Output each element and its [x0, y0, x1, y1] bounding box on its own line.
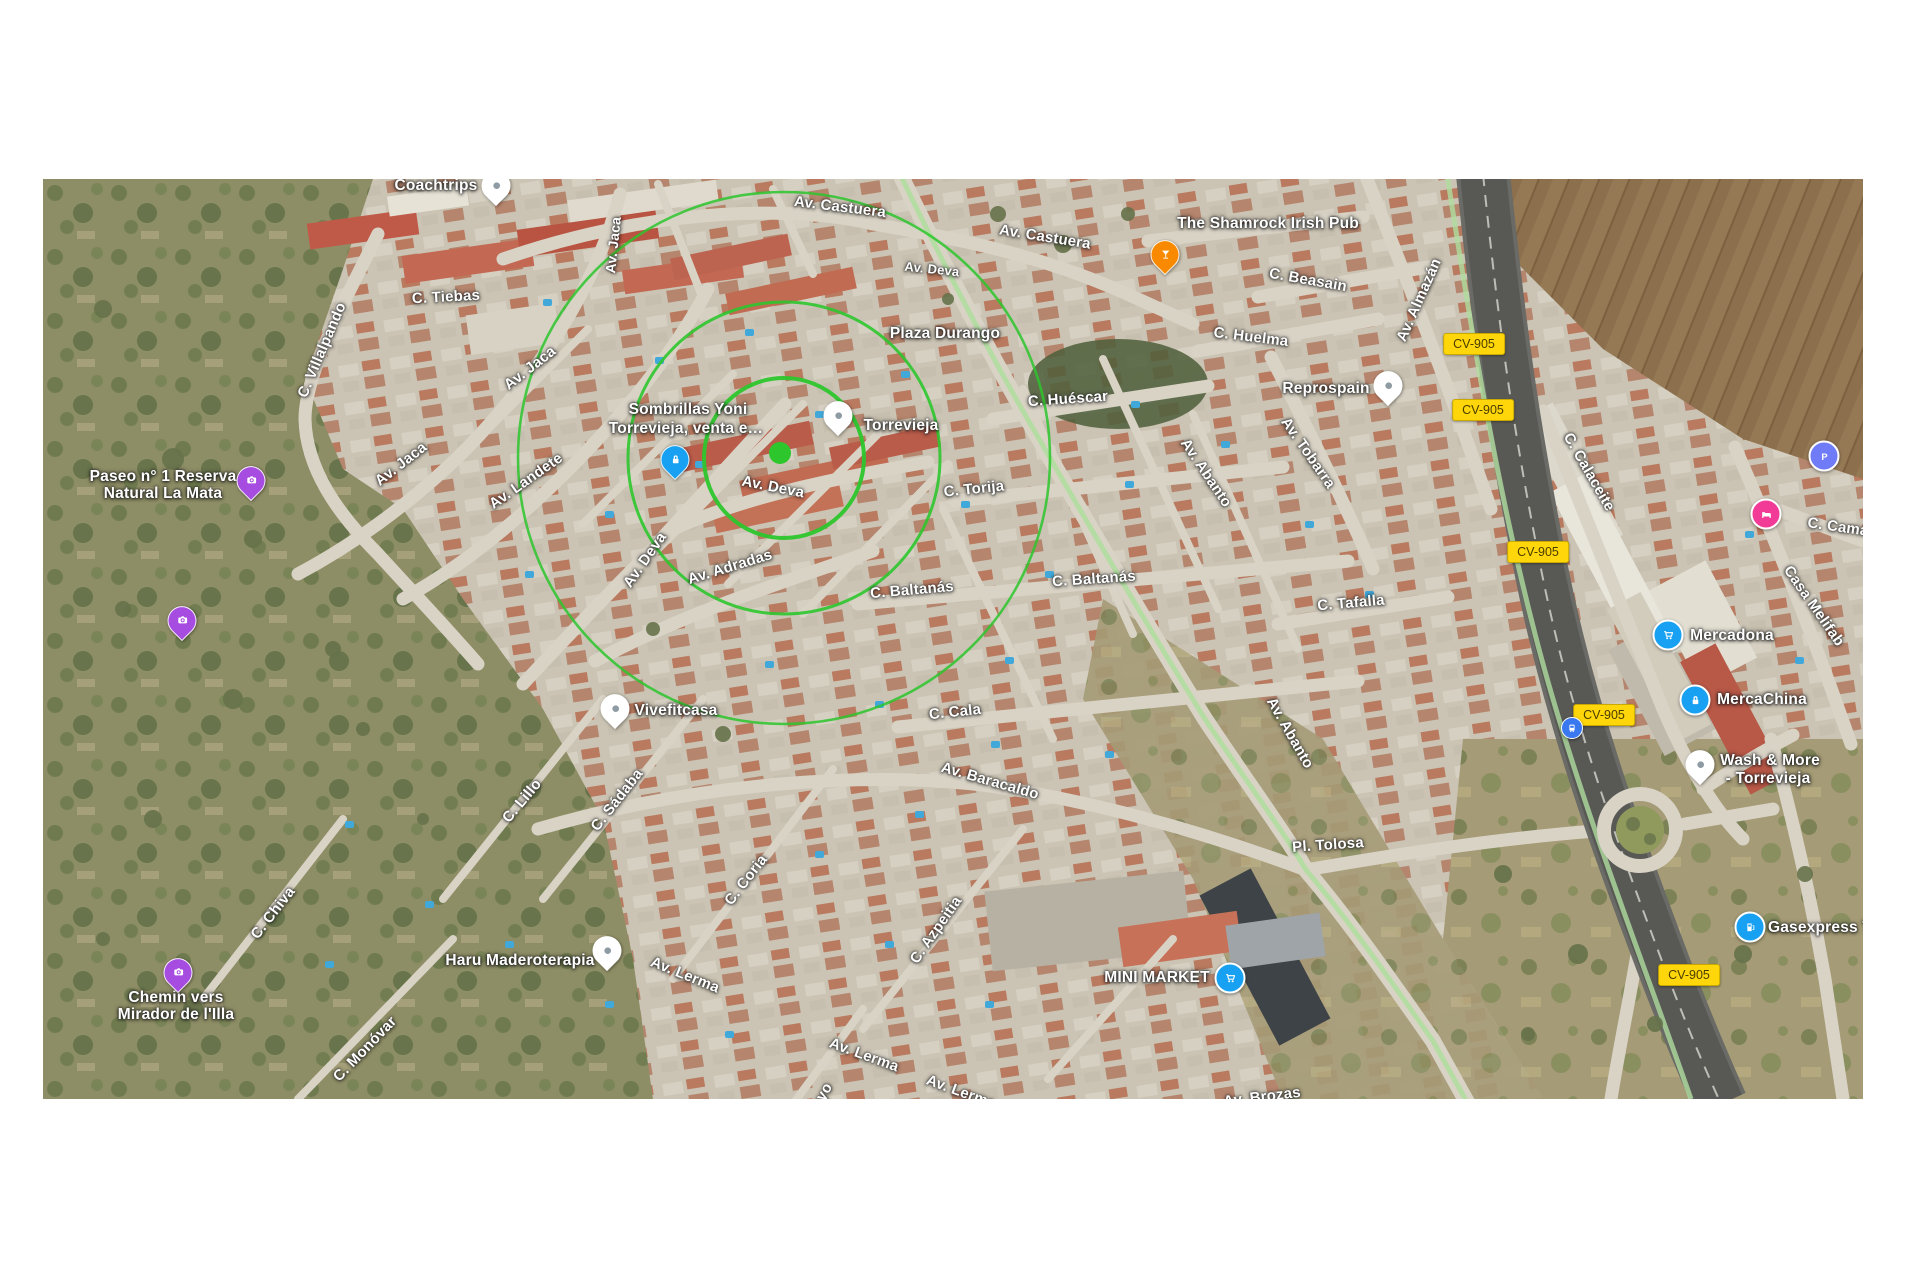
photo-pin-chemin[interactable]	[164, 958, 193, 987]
marker-icon	[1687, 692, 1703, 708]
marker-icon	[667, 452, 683, 468]
marker-icon	[1222, 970, 1238, 986]
marker-icon	[1566, 722, 1578, 734]
marker-icon	[174, 613, 190, 629]
marker-icon	[607, 701, 623, 717]
gasexpress-fuel-pin[interactable]	[1735, 912, 1766, 943]
mini-market-cart-pin[interactable]	[1215, 963, 1246, 994]
marker-icon	[1660, 627, 1676, 643]
marker-icon	[1816, 448, 1832, 464]
photo-pin-paseo[interactable]	[237, 466, 266, 495]
marker-icon	[243, 473, 259, 489]
marker-icon	[1758, 506, 1774, 522]
markers-layer	[43, 179, 1863, 1099]
marker-icon	[830, 408, 846, 424]
bus-stop-pin[interactable]	[1561, 717, 1583, 739]
haru-pin[interactable]	[593, 936, 622, 965]
wash-more-pin[interactable]	[1686, 750, 1715, 779]
reprospain-pin[interactable]	[1374, 371, 1403, 400]
marker-icon	[1380, 378, 1396, 394]
photo-pin-mid[interactable]	[168, 606, 197, 635]
marker-icon	[1742, 919, 1758, 935]
hotel-pin[interactable]	[1751, 499, 1782, 530]
screenshot-page: Av. CastueraAv. CastueraAv. DevaC. Beasa…	[0, 0, 1920, 1280]
shamrock-bar-pin[interactable]	[1151, 240, 1180, 269]
parking-pin[interactable]	[1809, 441, 1840, 472]
marker-icon	[1157, 247, 1173, 263]
marker-icon	[599, 943, 615, 959]
marker-icon	[1692, 757, 1708, 773]
sombrillas-shop-pin[interactable]	[661, 445, 690, 474]
satellite-map-viewport[interactable]: Av. CastueraAv. CastueraAv. DevaC. Beasa…	[43, 179, 1863, 1099]
mercadona-cart-pin[interactable]	[1653, 620, 1684, 651]
marker-icon	[488, 179, 504, 194]
torrevieja-pin[interactable]	[824, 401, 853, 430]
marker-icon	[170, 965, 186, 981]
mercachina-shop-pin[interactable]	[1680, 685, 1711, 716]
vivefitcasa-pin[interactable]	[601, 694, 630, 723]
coachtrips-pin[interactable]	[482, 179, 511, 200]
